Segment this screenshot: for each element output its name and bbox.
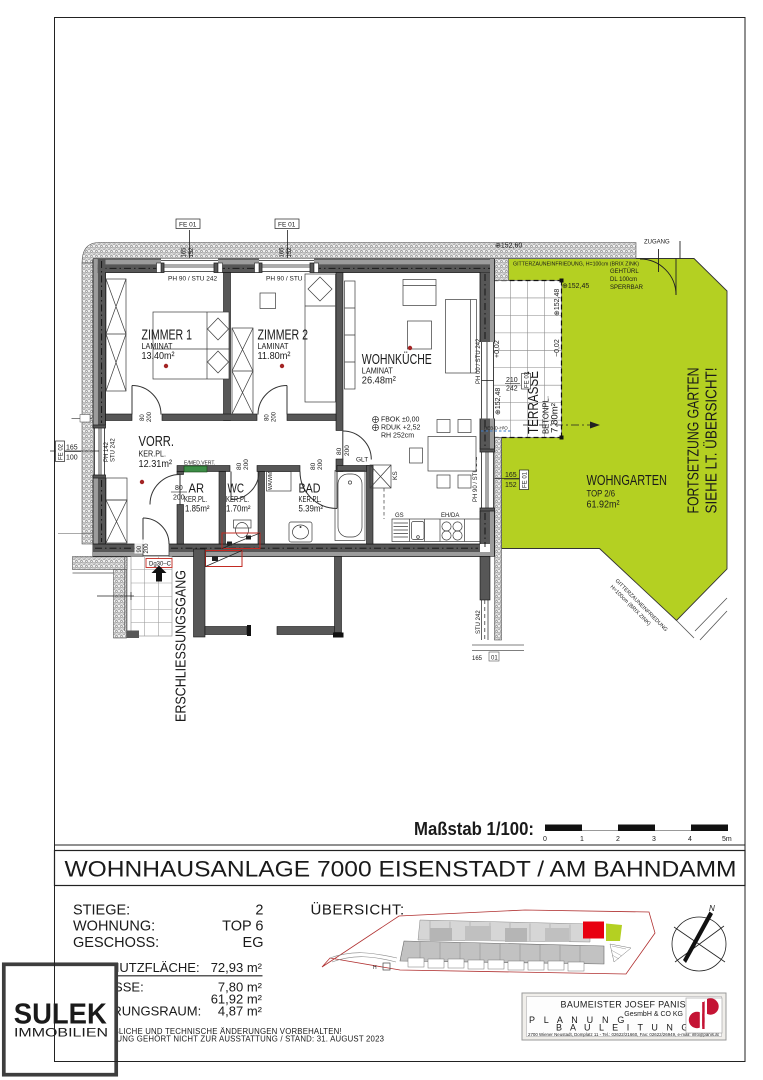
svg-text:⨁ RDUK +2,52: ⨁ RDUK +2,52	[372, 424, 421, 432]
svg-text:STU 242: STU 242	[476, 610, 482, 634]
svg-text:FE 01: FE 01	[179, 222, 197, 229]
svg-text:EH/DA: EH/DA	[441, 513, 459, 519]
svg-text:⊕152,45: ⊕152,45	[562, 283, 589, 290]
svg-text:4: 4	[688, 836, 692, 843]
svg-text:LAMINAT: LAMINAT	[362, 366, 393, 376]
svg-text:GITTERZAUNEINFRIEDUNG, H=100cm: GITTERZAUNEINFRIEDUNG, H=100cm (BRIX ZIN…	[513, 262, 639, 268]
svg-text:Dg30–C: Dg30–C	[149, 562, 172, 568]
svg-text:PH 00 / STU 242: PH 00 / STU 242	[476, 338, 482, 384]
svg-text:FORTSETZUNG GARTEN: FORTSETZUNG GARTEN	[686, 368, 703, 514]
svg-text:HEB-D-H²O: HEB-D-H²O	[484, 426, 508, 431]
svg-text:GS: GS	[395, 513, 404, 519]
svg-text:SULEK: SULEK	[14, 999, 107, 1031]
svg-text:200: 200	[147, 411, 153, 422]
svg-text:200: 200	[243, 459, 250, 470]
svg-text:80: 80	[265, 414, 271, 421]
svg-text:242: 242	[506, 386, 518, 393]
svg-text:EINRICHTUNG GEHÖRT NICHT ZUR A: EINRICHTUNG GEHÖRT NICHT ZUR AUSSTATTUNG…	[78, 1035, 384, 1044]
svg-text:01: 01	[491, 656, 498, 662]
svg-text:80: 80	[236, 462, 243, 470]
svg-text:200: 200	[344, 445, 351, 456]
svg-text:DL 100cm: DL 100cm	[610, 277, 637, 283]
svg-text:200: 200	[173, 495, 185, 502]
svg-text:FE 03: FE 03	[525, 371, 531, 388]
svg-text:152: 152	[287, 247, 293, 258]
svg-text:1: 1	[580, 836, 584, 843]
svg-text:EG: EG	[243, 935, 264, 951]
svg-text:ERSCHLIESSUNGSGANG: ERSCHLIESSUNGSGANG	[173, 570, 190, 722]
svg-text:80: 80	[140, 414, 146, 421]
svg-text:2: 2	[255, 903, 263, 919]
svg-text:13.40m²: 13.40m²	[142, 351, 176, 362]
svg-text:165: 165	[280, 247, 286, 258]
svg-text:152: 152	[189, 247, 195, 258]
svg-text:1.85m²: 1.85m²	[185, 504, 210, 514]
svg-text:WC: WC	[228, 482, 245, 496]
svg-text:LAMINAT: LAMINAT	[258, 341, 289, 351]
svg-text:KER.PL.: KER.PL.	[139, 449, 167, 459]
svg-text:+0,02: +0,02	[494, 340, 501, 358]
svg-text:GLT: GLT	[356, 457, 368, 464]
svg-text:Maßstab 1/100:: Maßstab 1/100:	[414, 818, 534, 839]
svg-text:PH 90 / STU 242: PH 90 / STU 242	[168, 276, 218, 283]
svg-text:TOP 6: TOP 6	[222, 919, 263, 935]
svg-text:165: 165	[182, 247, 188, 258]
svg-text:N: N	[709, 904, 715, 913]
svg-text:E/MED.VERT.: E/MED.VERT.	[184, 461, 215, 467]
svg-text:5.39m²: 5.39m²	[299, 504, 324, 514]
svg-text:SPERRBAR: SPERRBAR	[610, 285, 644, 291]
svg-text:WOHNUNG:: WOHNUNG:	[73, 919, 155, 935]
svg-text:WOHNGARTEN: WOHNGARTEN	[587, 472, 668, 489]
svg-text:100: 100	[66, 455, 78, 462]
svg-text:165: 165	[472, 656, 483, 662]
svg-text:AR: AR	[189, 482, 205, 496]
svg-text:⊕152,60: ⊕152,60	[495, 243, 522, 250]
svg-text:H: H	[373, 965, 377, 971]
svg-text:ÜBERSICHT:: ÜBERSICHT:	[311, 901, 405, 919]
svg-text:11.80m²: 11.80m²	[258, 351, 292, 362]
svg-text:WOHNHAUSANLAGE 7000 EISENSTADT: WOHNHAUSANLAGE 7000 EISENSTADT / AM BAHN…	[65, 857, 737, 882]
svg-text:152: 152	[505, 482, 517, 489]
svg-text:BAD: BAD	[299, 482, 321, 496]
svg-text:5m: 5m	[722, 836, 732, 843]
svg-text:ZUGANG: ZUGANG	[644, 240, 670, 246]
svg-text:90: 90	[137, 545, 143, 552]
svg-text:61.92m²: 61.92m²	[587, 499, 620, 511]
svg-text:⊕152,48: ⊕152,48	[495, 388, 502, 415]
svg-text:165: 165	[505, 472, 517, 479]
svg-text:GEHTÜRL: GEHTÜRL	[610, 268, 639, 275]
svg-text:210: 210	[506, 377, 518, 384]
svg-text:165: 165	[66, 445, 78, 452]
svg-text:FE 01: FE 01	[278, 222, 296, 229]
svg-text:72,93 m²: 72,93 m²	[211, 960, 263, 975]
svg-text:7.80m²: 7.80m²	[550, 403, 561, 433]
svg-text:FE 01: FE 01	[523, 471, 529, 488]
svg-text:3: 3	[652, 836, 656, 843]
svg-text:80: 80	[310, 462, 317, 470]
svg-text:LAMINAT: LAMINAT	[142, 341, 173, 351]
svg-text:80: 80	[175, 485, 183, 492]
svg-text:PH 142: PH 142	[104, 441, 110, 462]
svg-text:200: 200	[317, 459, 324, 470]
svg-text:12.31m²: 12.31m²	[139, 459, 173, 470]
svg-text:IMMOBILIEN: IMMOBILIEN	[14, 1028, 108, 1040]
svg-text:SIEHE LT. ÜBERSICHT!: SIEHE LT. ÜBERSICHT!	[703, 368, 721, 514]
svg-text:GESCHOSS:: GESCHOSS:	[73, 935, 159, 951]
svg-text:⊕152,48: ⊕152,48	[554, 289, 561, 316]
svg-text:⨁ FBOK ±0,00: ⨁ FBOK ±0,00	[372, 416, 420, 424]
svg-text:RH 252cm: RH 252cm	[381, 433, 414, 440]
svg-text:26.48m²: 26.48m²	[362, 376, 397, 387]
svg-text:4,87 m²: 4,87 m²	[218, 1004, 263, 1019]
svg-text:KS: KS	[392, 471, 399, 480]
svg-text:B A U L E I T U N G: B A U L E I T U N G	[556, 1023, 691, 1033]
svg-text:0: 0	[543, 836, 547, 843]
svg-text:STU 242: STU 242	[111, 438, 117, 462]
svg-text:NUTZFLÄCHE:: NUTZFLÄCHE:	[110, 960, 200, 975]
svg-text:WA/WM: WA/WM	[268, 472, 274, 490]
svg-text:FE 02: FE 02	[59, 443, 65, 460]
svg-text:2: 2	[616, 836, 620, 843]
svg-text:GesmbH & CO KG: GesmbH & CO KG	[624, 1011, 683, 1018]
svg-text:200: 200	[144, 543, 150, 554]
svg-text:STIEGE:: STIEGE:	[73, 903, 130, 919]
svg-text:−0,02: −0,02	[554, 339, 561, 357]
svg-text:80: 80	[336, 447, 343, 455]
svg-text:BAUMEISTER JOSEF PANIS: BAUMEISTER JOSEF PANIS	[561, 1000, 686, 1010]
svg-text:1.70m²: 1.70m²	[226, 504, 251, 514]
svg-text:200: 200	[272, 411, 278, 422]
